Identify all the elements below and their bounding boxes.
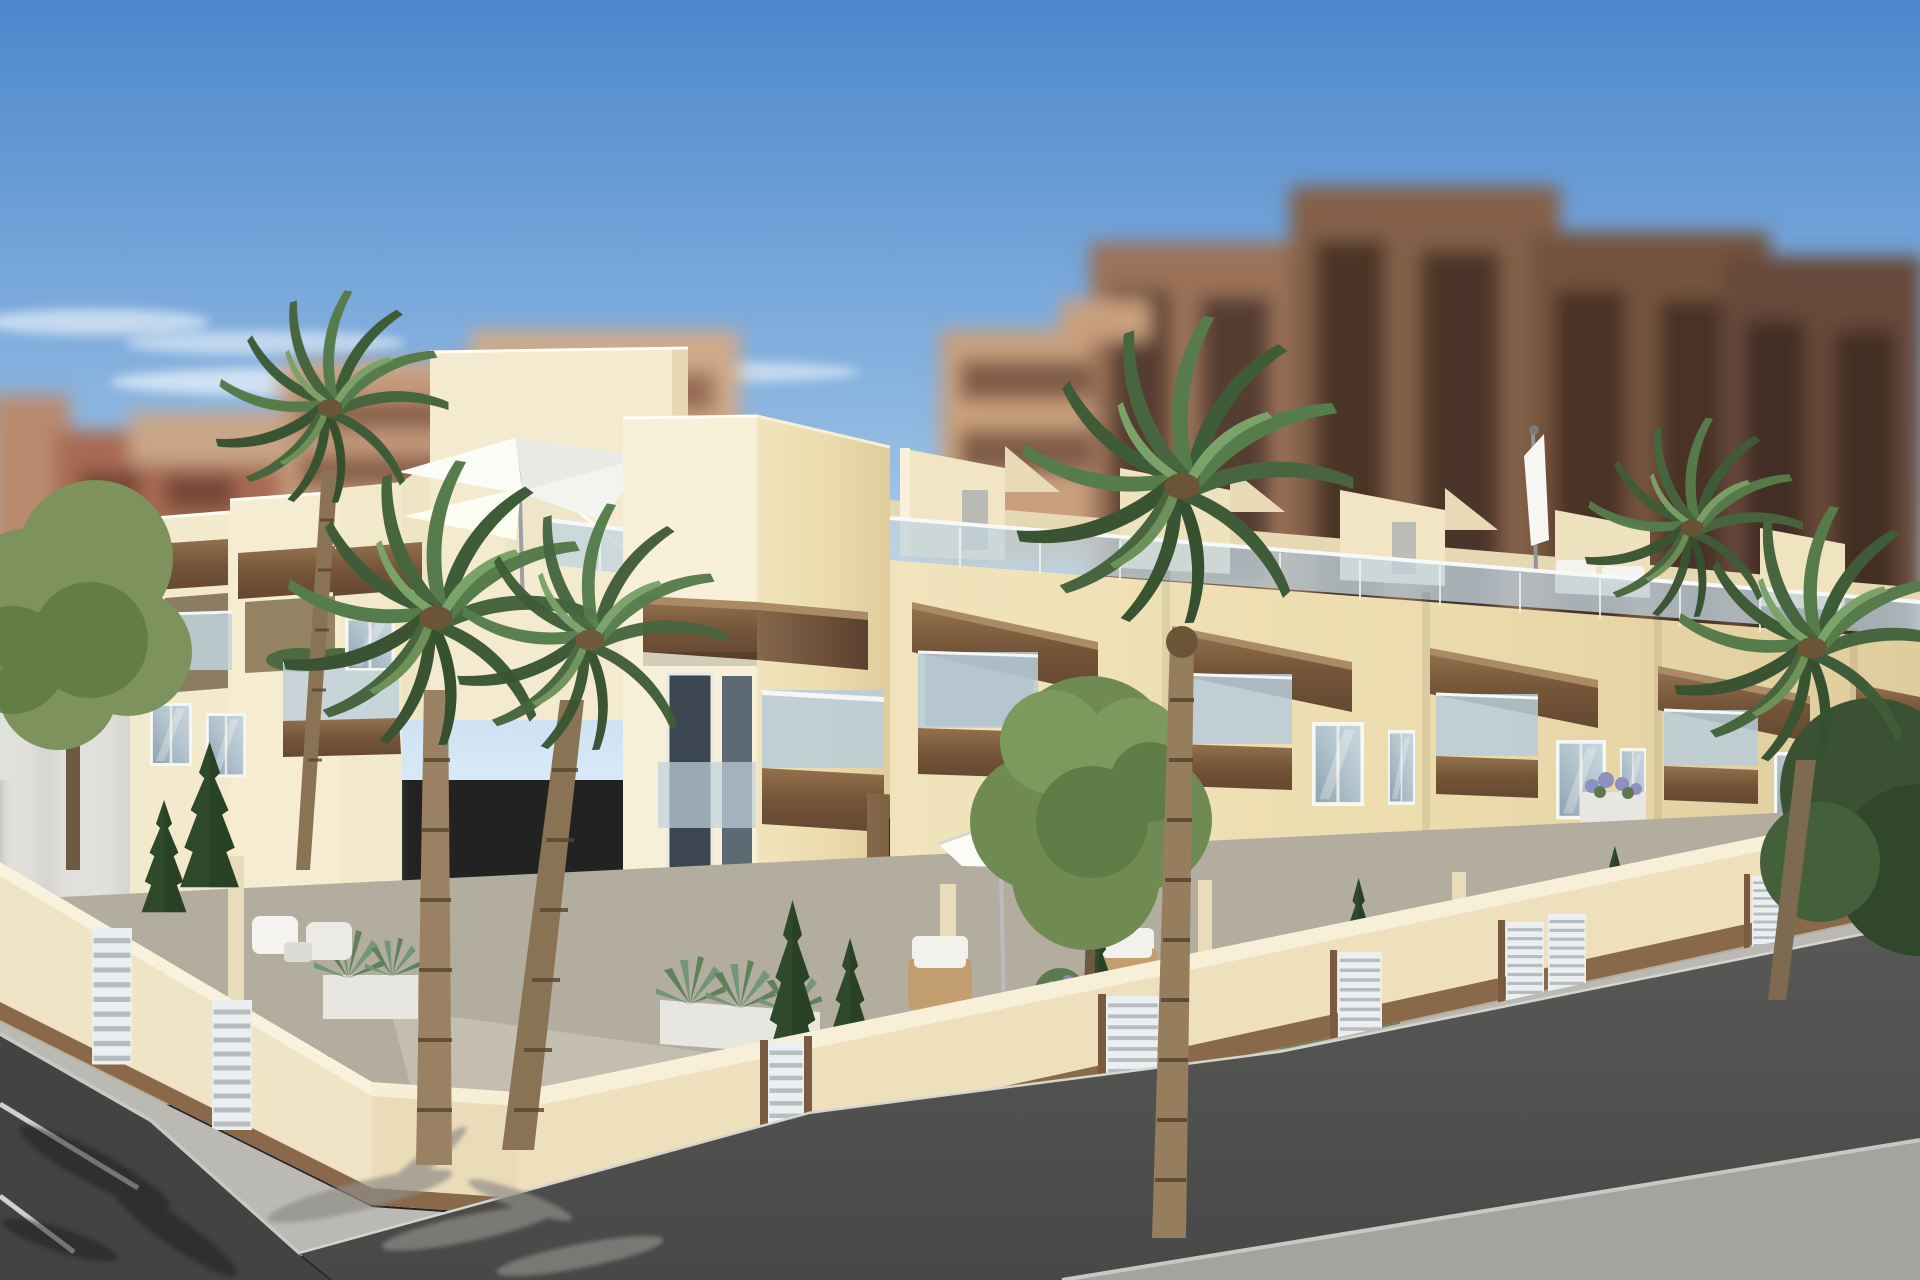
- fence-gate[interactable]: [1506, 922, 1544, 1005]
- townhouse-render-scene: [0, 0, 1920, 1280]
- balcony-wood-base: [1664, 766, 1758, 804]
- fence-gate[interactable]: [92, 928, 132, 1065]
- balcony-glass: [1436, 694, 1538, 756]
- fence-gate[interactable]: [1548, 914, 1586, 996]
- balcony-glass: [1178, 674, 1292, 744]
- balcony-wood-base: [1436, 756, 1538, 798]
- render-canvas: [0, 0, 1920, 1280]
- balcony-glass: [658, 762, 756, 828]
- fence-gate[interactable]: [212, 1000, 252, 1130]
- wicker-armchair: [908, 936, 972, 1010]
- balcony-glass: [762, 690, 884, 768]
- balcony-wood-base: [762, 768, 884, 832]
